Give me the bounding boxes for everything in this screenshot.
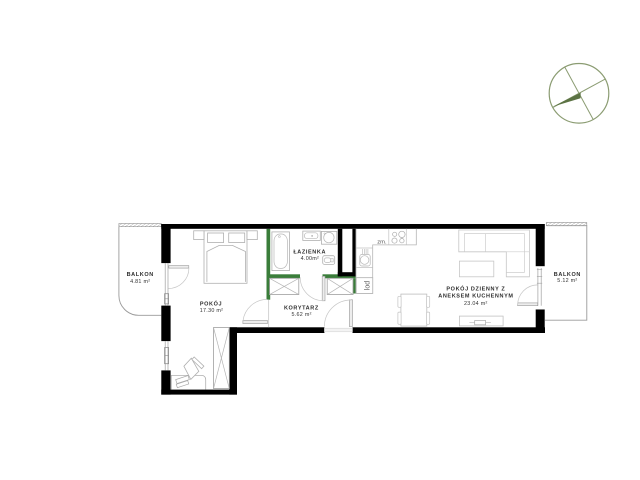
svg-text:KORYTARZ: KORYTARZ — [284, 306, 319, 312]
svg-text:POKÓJ DZIENNY Z: POKÓJ DZIENNY Z — [446, 285, 505, 293]
svg-text:BALKON: BALKON — [127, 272, 154, 278]
svg-text:5.62 m²: 5.62 m² — [291, 312, 311, 318]
svg-text:zm.: zm. — [377, 240, 387, 246]
svg-text:4.00m²: 4.00m² — [301, 256, 319, 262]
svg-text:ŁAZIENKA: ŁAZIENKA — [293, 249, 326, 255]
svg-text:17.30 m²: 17.30 m² — [200, 308, 224, 314]
svg-text:POKÓJ: POKÓJ — [200, 300, 222, 308]
svg-text:23.04 m²: 23.04 m² — [464, 301, 488, 307]
svg-text:lod: lod — [365, 281, 372, 290]
svg-text:ANEKSEM KUCHENNYM: ANEKSEM KUCHENNYM — [438, 294, 513, 300]
svg-text:4.81 m²: 4.81 m² — [130, 279, 150, 285]
svg-text:5.12 m²: 5.12 m² — [557, 278, 577, 284]
